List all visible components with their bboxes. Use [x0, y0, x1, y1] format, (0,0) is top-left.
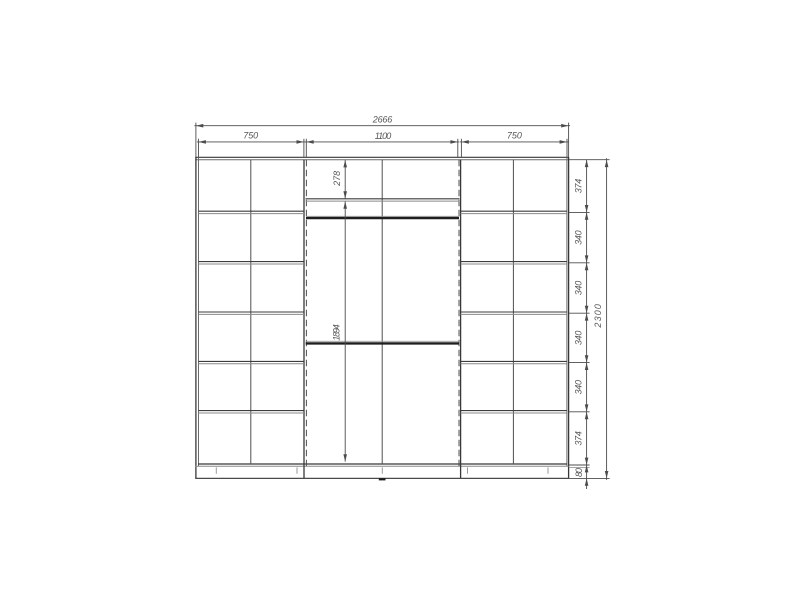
svg-text:374: 374 [573, 431, 583, 446]
svg-text:278: 278 [332, 171, 342, 187]
svg-text:750: 750 [243, 131, 258, 141]
svg-text:340: 340 [573, 230, 583, 245]
svg-text:750: 750 [507, 131, 522, 141]
svg-text:80: 80 [574, 468, 584, 477]
svg-text:340: 340 [573, 281, 583, 296]
svg-text:340: 340 [573, 331, 583, 346]
svg-text:1894: 1894 [331, 324, 341, 341]
svg-text:1100: 1100 [375, 131, 392, 141]
svg-text:2666: 2666 [372, 115, 393, 125]
svg-text:340: 340 [573, 380, 583, 395]
svg-text:374: 374 [573, 179, 583, 194]
